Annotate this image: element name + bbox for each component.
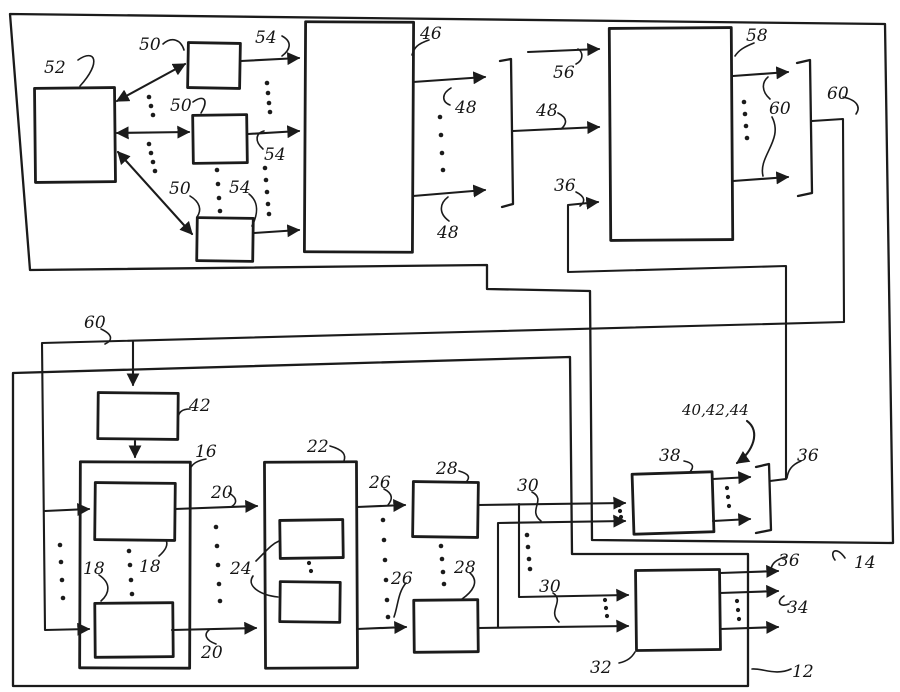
ellipsis-24-boxes	[307, 561, 313, 573]
label-48-mid: 48	[535, 101, 558, 121]
box-58	[609, 28, 732, 241]
label-50-top: 50	[139, 35, 161, 55]
ellipsis-48-outputs	[438, 115, 446, 173]
leader-48-mid	[558, 113, 566, 129]
label-16: 16	[195, 442, 217, 462]
ellipsis-left-inputs	[58, 543, 66, 601]
label-36-out: 36	[778, 551, 800, 571]
patent-figure: 52 50 50 50 54 54 54 46 48 48 48 56 58 6…	[0, 0, 900, 692]
arrow-40-42-44-pointer	[737, 421, 754, 463]
leader-28-upper	[459, 471, 468, 481]
label-48-upper: 48	[454, 98, 477, 118]
container-12-outline	[13, 357, 748, 686]
ellipsis-28-boxes	[439, 544, 447, 587]
box-24-lower	[280, 582, 340, 623]
leader-50-middle	[193, 98, 205, 113]
arrow-38-bracket-upper	[713, 477, 750, 479]
leader-22	[330, 446, 345, 461]
label-60-inner: 60	[769, 99, 791, 119]
box-50-bottom	[197, 218, 254, 262]
leader-54-top	[282, 36, 289, 56]
label-42: 42	[188, 396, 211, 416]
arrow-46-48-upper	[413, 77, 485, 82]
arrow-28-32-lower	[478, 626, 628, 628]
ellipsis-54-upper	[265, 81, 273, 115]
ellipsis-30-crossover	[525, 533, 533, 572]
label-30-upper: 30	[517, 476, 539, 496]
leader-60-inner	[762, 77, 775, 176]
patent-figure-page: 52 50 50 50 54 54 54 46 48 48 48 56 58 6…	[0, 0, 900, 692]
ellipsis-52-arrows-upper	[147, 95, 156, 118]
bracket-48-outputs	[500, 59, 513, 207]
leader-50-top	[163, 40, 184, 50]
leader-48-upper	[444, 88, 451, 105]
label-34: 34	[787, 598, 809, 618]
label-46: 46	[419, 24, 442, 44]
leader-32	[619, 652, 635, 663]
label-20-upper: 20	[210, 483, 233, 503]
leader-56	[576, 49, 582, 64]
label-12: 12	[792, 662, 814, 682]
box-28-upper	[413, 482, 479, 538]
leader-50-bottom	[190, 196, 200, 217]
ellipsis-32-inputs	[603, 598, 609, 618]
ellipsis-38-inputs	[617, 503, 623, 519]
label-36-right: 36	[797, 446, 819, 466]
leader-14	[833, 551, 845, 560]
ellipsis-54-lower	[263, 166, 272, 217]
label-14: 14	[854, 553, 876, 573]
arrow-32-out-34	[720, 591, 778, 593]
box-38	[632, 472, 714, 534]
ellipsis-26-lines	[381, 518, 391, 620]
arrow-38-bracket-lower	[713, 519, 750, 521]
leader-48-lower	[441, 197, 449, 221]
box-42	[98, 393, 178, 440]
label-50-middle: 50	[170, 96, 192, 116]
box-32	[636, 569, 721, 650]
label-24: 24	[229, 559, 252, 579]
ellipsis-18-boxes	[127, 549, 135, 597]
label-18-right: 18	[139, 557, 161, 577]
label-56: 56	[553, 63, 575, 83]
container-22	[264, 462, 357, 668]
box-50-middle	[193, 115, 248, 164]
label-22: 22	[306, 437, 329, 457]
arrow-48-58	[513, 127, 599, 131]
label-26-upper: 26	[368, 473, 391, 493]
label-30-lower: 30	[539, 577, 561, 597]
arrow-22-28-upper	[357, 505, 405, 507]
arrow-56-input	[528, 49, 599, 52]
arrow-32-out-last	[720, 627, 778, 629]
box-18-upper	[95, 483, 176, 541]
box-24-upper	[280, 520, 344, 559]
arrow-52-50-middle	[117, 132, 189, 133]
ellipsis-52-arrows-lower	[147, 142, 158, 174]
box-50-top	[188, 43, 241, 89]
leader-38	[684, 461, 692, 472]
leader-18-right	[159, 540, 167, 556]
label-60-right: 60	[827, 84, 849, 104]
ellipsis-38-outputs	[725, 486, 731, 508]
ellipsis-60-outputs	[742, 100, 750, 141]
box-52	[35, 88, 116, 183]
label-54-middle: 54	[264, 145, 286, 165]
label-18-left: 18	[83, 559, 105, 579]
label-32: 32	[590, 658, 612, 678]
leader-52	[78, 56, 94, 86]
ellipsis-32-outputs	[735, 599, 741, 621]
arrow-46-48-lower	[413, 190, 485, 196]
leader-12	[752, 669, 791, 672]
leader-30-upper	[532, 492, 541, 521]
ellipsis-20-lines	[214, 525, 223, 604]
box-28-lower	[414, 600, 479, 653]
label-28-upper: 28	[435, 459, 458, 479]
arrow-58-60-upper	[733, 72, 788, 76]
wire-28upper-32	[519, 504, 628, 597]
bracket-40-42-44	[756, 464, 771, 533]
label-36-top: 36	[554, 176, 576, 196]
box-18-lower	[95, 603, 173, 658]
label-28-lower: 28	[453, 558, 476, 578]
label-58: 58	[746, 26, 768, 46]
label-60-feedback: 60	[84, 313, 106, 333]
label-38: 38	[659, 446, 681, 466]
bracket-60-outputs	[797, 60, 812, 196]
arrow-50-middle-46	[248, 131, 299, 134]
label-54-top: 54	[255, 28, 277, 48]
label-20-lower: 20	[200, 643, 223, 663]
ellipsis-50-boxes	[215, 168, 223, 214]
arrow-18-22-lower	[172, 628, 256, 630]
arrow-22-28-lower	[357, 627, 406, 629]
arrow-18-22-upper	[175, 506, 257, 509]
arrow-50-top-46	[241, 58, 299, 61]
label-52: 52	[44, 58, 66, 78]
box-46	[304, 22, 413, 253]
label-40-42-44: 40,42,44	[681, 401, 749, 419]
leader-20-lower	[206, 630, 216, 644]
label-48-lower: 48	[436, 223, 459, 243]
arrow-58-60-lower	[733, 177, 788, 181]
label-50-bottom: 50	[169, 179, 191, 199]
arrow-50-bottom-46	[254, 230, 299, 233]
wire-28lower-38	[498, 521, 625, 627]
arrow-32-out-36	[720, 571, 778, 573]
label-54-bottom: 54	[229, 178, 251, 198]
arrow-28-38-upper	[478, 503, 625, 505]
arrow-60-18-upper	[45, 509, 89, 511]
label-26-lower: 26	[390, 569, 413, 589]
